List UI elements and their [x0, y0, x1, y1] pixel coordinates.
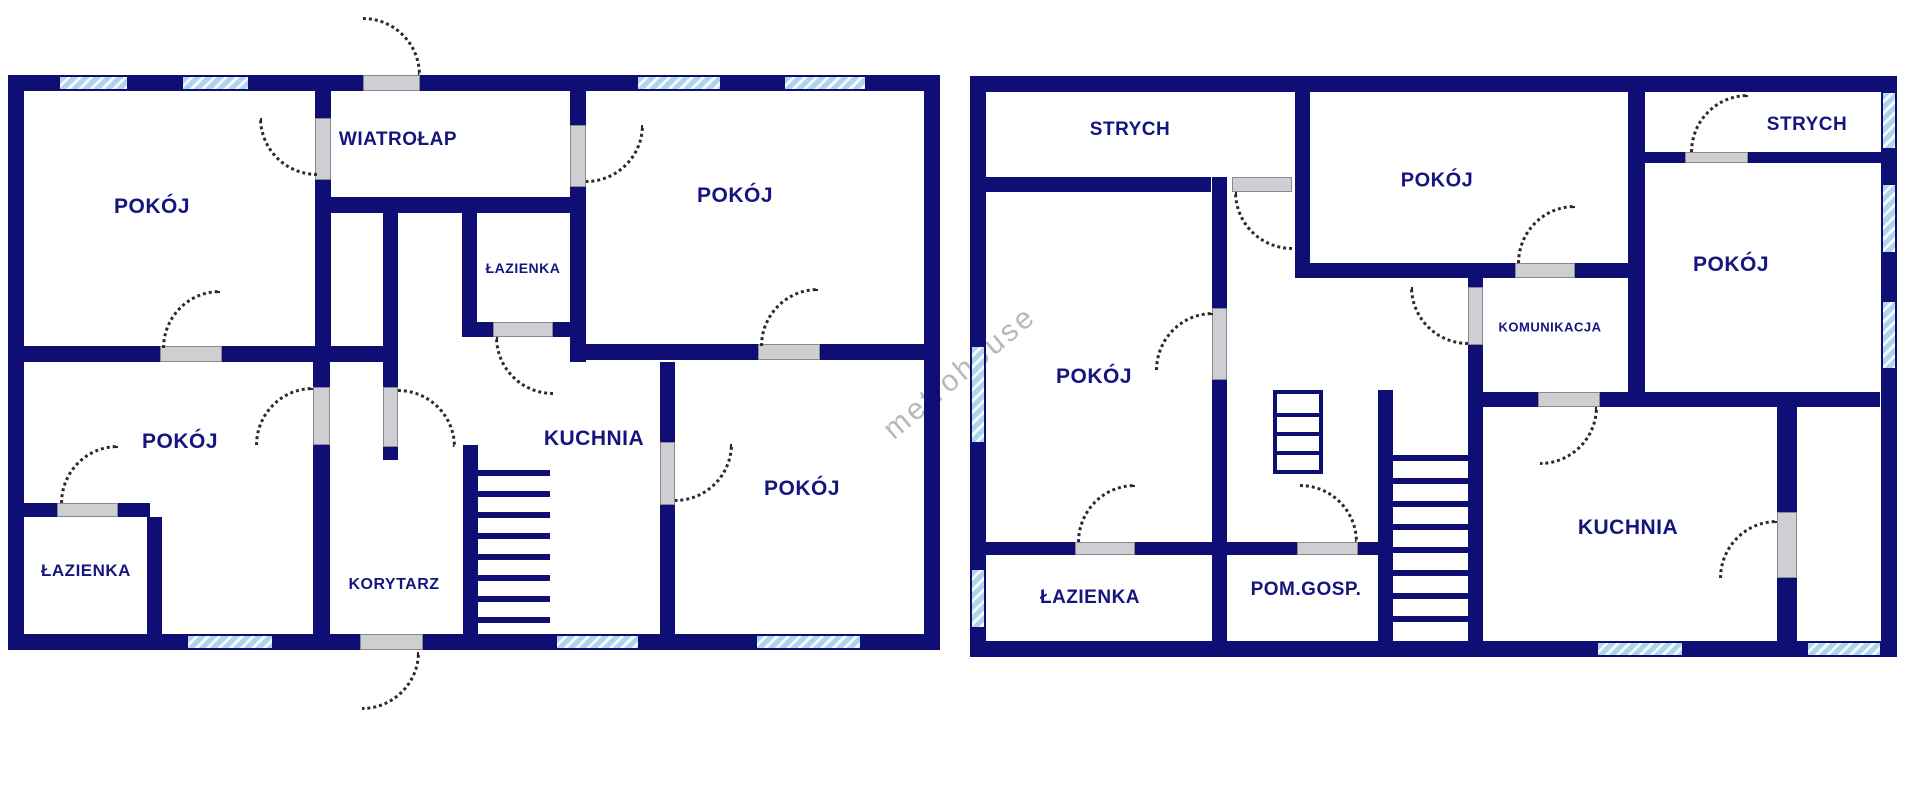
- room-label: POKÓJ: [1401, 170, 1474, 193]
- window: [183, 77, 248, 89]
- stair-tread: [478, 575, 550, 581]
- room-label: POKÓJ: [697, 184, 773, 208]
- room-label: STRYCH: [1090, 119, 1170, 141]
- room-label: STRYCH: [1767, 114, 1847, 136]
- door-jamb: [1538, 392, 1600, 407]
- window: [785, 77, 865, 89]
- wall: [970, 76, 1897, 92]
- door-jamb: [493, 322, 553, 337]
- door-swing-arc: [398, 389, 456, 447]
- room-label: POKÓJ: [1056, 365, 1132, 389]
- door-swing-arc: [760, 288, 818, 346]
- door-swing-arc: [495, 337, 553, 395]
- room-label: POM.GOSP.: [1251, 579, 1362, 601]
- door-swing-arc: [675, 444, 733, 502]
- door-swing-arc: [259, 118, 317, 176]
- door-jamb: [1232, 177, 1292, 192]
- door-swing-arc: [1155, 312, 1213, 370]
- room-label: ŁAZIENKA: [486, 260, 561, 276]
- room-label: POKÓJ: [114, 195, 190, 219]
- room-label: POKÓJ: [1693, 253, 1769, 277]
- wall: [1295, 263, 1628, 278]
- ladder-rung: [1277, 432, 1319, 436]
- stair-tread: [478, 596, 550, 602]
- stair-tread: [1393, 547, 1468, 553]
- wall: [986, 177, 1211, 192]
- window: [972, 570, 984, 627]
- door-jamb: [383, 387, 398, 447]
- wall: [924, 75, 940, 650]
- wall: [1628, 76, 1645, 407]
- door-swing-arc: [1540, 407, 1598, 465]
- window: [972, 347, 984, 442]
- room-label: KUCHNIA: [544, 427, 644, 451]
- door-swing-arc: [1234, 192, 1292, 250]
- room-label: POKÓJ: [142, 430, 218, 454]
- floorplan-canvas: metrohouse POKÓJWIATROŁAPPOKÓJŁAZIENKAKU…: [0, 0, 1920, 789]
- door-jamb: [1685, 152, 1748, 163]
- stair-tread: [478, 617, 550, 623]
- ladder-rung: [1277, 413, 1319, 417]
- door-jamb: [363, 75, 420, 91]
- room-label: ŁAZIENKA: [41, 561, 131, 581]
- door-swing-arc: [1517, 205, 1575, 263]
- door-jamb: [1777, 512, 1797, 578]
- door-swing-arc: [363, 17, 421, 75]
- stair-tread: [1393, 616, 1468, 622]
- stair-tread: [1393, 478, 1468, 484]
- room-label: KUCHNIA: [1578, 516, 1678, 540]
- stair-tread: [1393, 524, 1468, 530]
- window: [638, 77, 720, 89]
- watermark: metrohouse: [877, 299, 1043, 446]
- stair-tread: [1393, 593, 1468, 599]
- stair-tread: [478, 491, 550, 497]
- stair-tread: [1393, 455, 1468, 461]
- stair-tread: [478, 512, 550, 518]
- door-jamb: [1075, 542, 1135, 555]
- wall: [1212, 177, 1227, 657]
- wall: [660, 362, 675, 650]
- wall: [147, 517, 162, 634]
- door-jamb: [1297, 542, 1358, 555]
- room-label: ŁAZIENKA: [1040, 587, 1140, 609]
- attic-ladder: [1273, 390, 1323, 474]
- door-jamb: [160, 346, 222, 362]
- window: [60, 77, 127, 89]
- door-jamb: [360, 634, 423, 650]
- window: [1883, 185, 1895, 252]
- stair-tread: [1393, 570, 1468, 576]
- window: [1883, 302, 1895, 368]
- ladder-rung: [1277, 451, 1319, 455]
- door-jamb: [1515, 263, 1575, 278]
- door-jamb: [1212, 308, 1227, 380]
- window: [757, 636, 860, 648]
- wall: [463, 445, 478, 650]
- door-swing-arc: [255, 387, 313, 445]
- wall: [331, 197, 585, 213]
- wall: [8, 75, 24, 650]
- door-swing-arc: [162, 290, 220, 348]
- wall: [1645, 152, 1881, 163]
- room-label: WIATROŁAP: [339, 129, 457, 151]
- door-swing-arc: [362, 652, 420, 710]
- wall: [1378, 390, 1393, 641]
- door-swing-arc: [586, 125, 644, 183]
- window: [188, 636, 272, 648]
- wall: [1295, 92, 1310, 270]
- wall: [462, 213, 477, 337]
- stair-tread: [478, 470, 550, 476]
- door-jamb: [1468, 287, 1483, 345]
- door-swing-arc: [1719, 520, 1777, 578]
- door-swing-arc: [1300, 484, 1358, 542]
- door-jamb: [57, 503, 118, 517]
- door-swing-arc: [60, 445, 118, 503]
- stair-tread: [478, 554, 550, 560]
- door-jamb: [758, 344, 820, 360]
- door-swing-arc: [1077, 484, 1135, 542]
- door-swing-arc: [1690, 94, 1748, 152]
- door-jamb: [315, 118, 331, 180]
- door-jamb: [570, 125, 586, 187]
- room-label: POKÓJ: [764, 477, 840, 501]
- door-swing-arc: [1410, 287, 1468, 345]
- door-jamb: [660, 442, 675, 505]
- door-jamb: [313, 387, 330, 445]
- room-label: KOMUNIKACJA: [1499, 320, 1602, 335]
- stair-tread: [1393, 501, 1468, 507]
- window: [1808, 643, 1880, 655]
- room-label: KORYTARZ: [348, 576, 439, 594]
- window: [557, 636, 638, 648]
- stair-tread: [478, 533, 550, 539]
- window: [1883, 93, 1895, 148]
- wall: [970, 641, 1897, 657]
- window: [1598, 643, 1682, 655]
